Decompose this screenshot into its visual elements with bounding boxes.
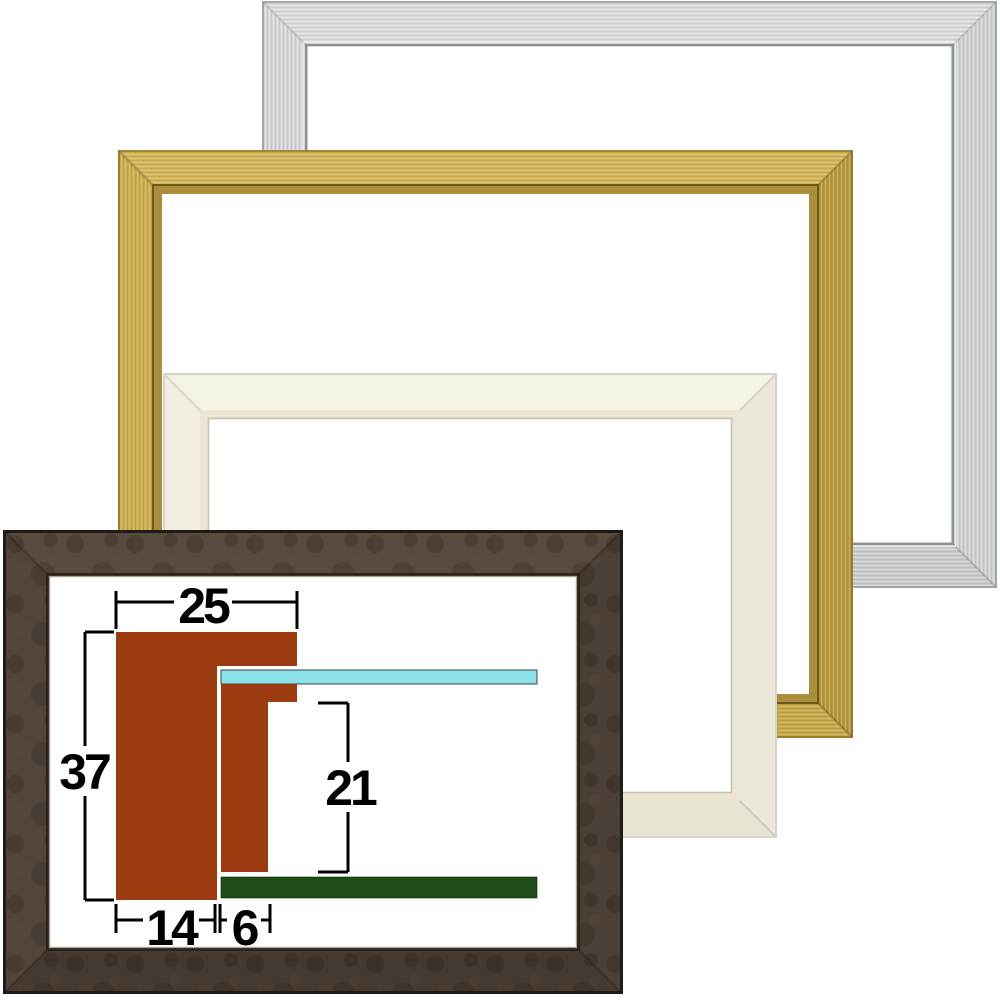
product-image-canvas: 25 37 21 14 6 <box>0 0 1000 1000</box>
silver-brush-texture <box>951 1 997 588</box>
brown-wood-texture <box>577 530 623 994</box>
brown-wood-texture <box>3 530 49 994</box>
brown-frame-interior <box>3 530 623 994</box>
brown-wood-texture <box>3 948 623 994</box>
brown-wood-texture <box>3 530 623 576</box>
silver-brush-texture <box>262 1 997 47</box>
brown-frame <box>3 530 623 994</box>
